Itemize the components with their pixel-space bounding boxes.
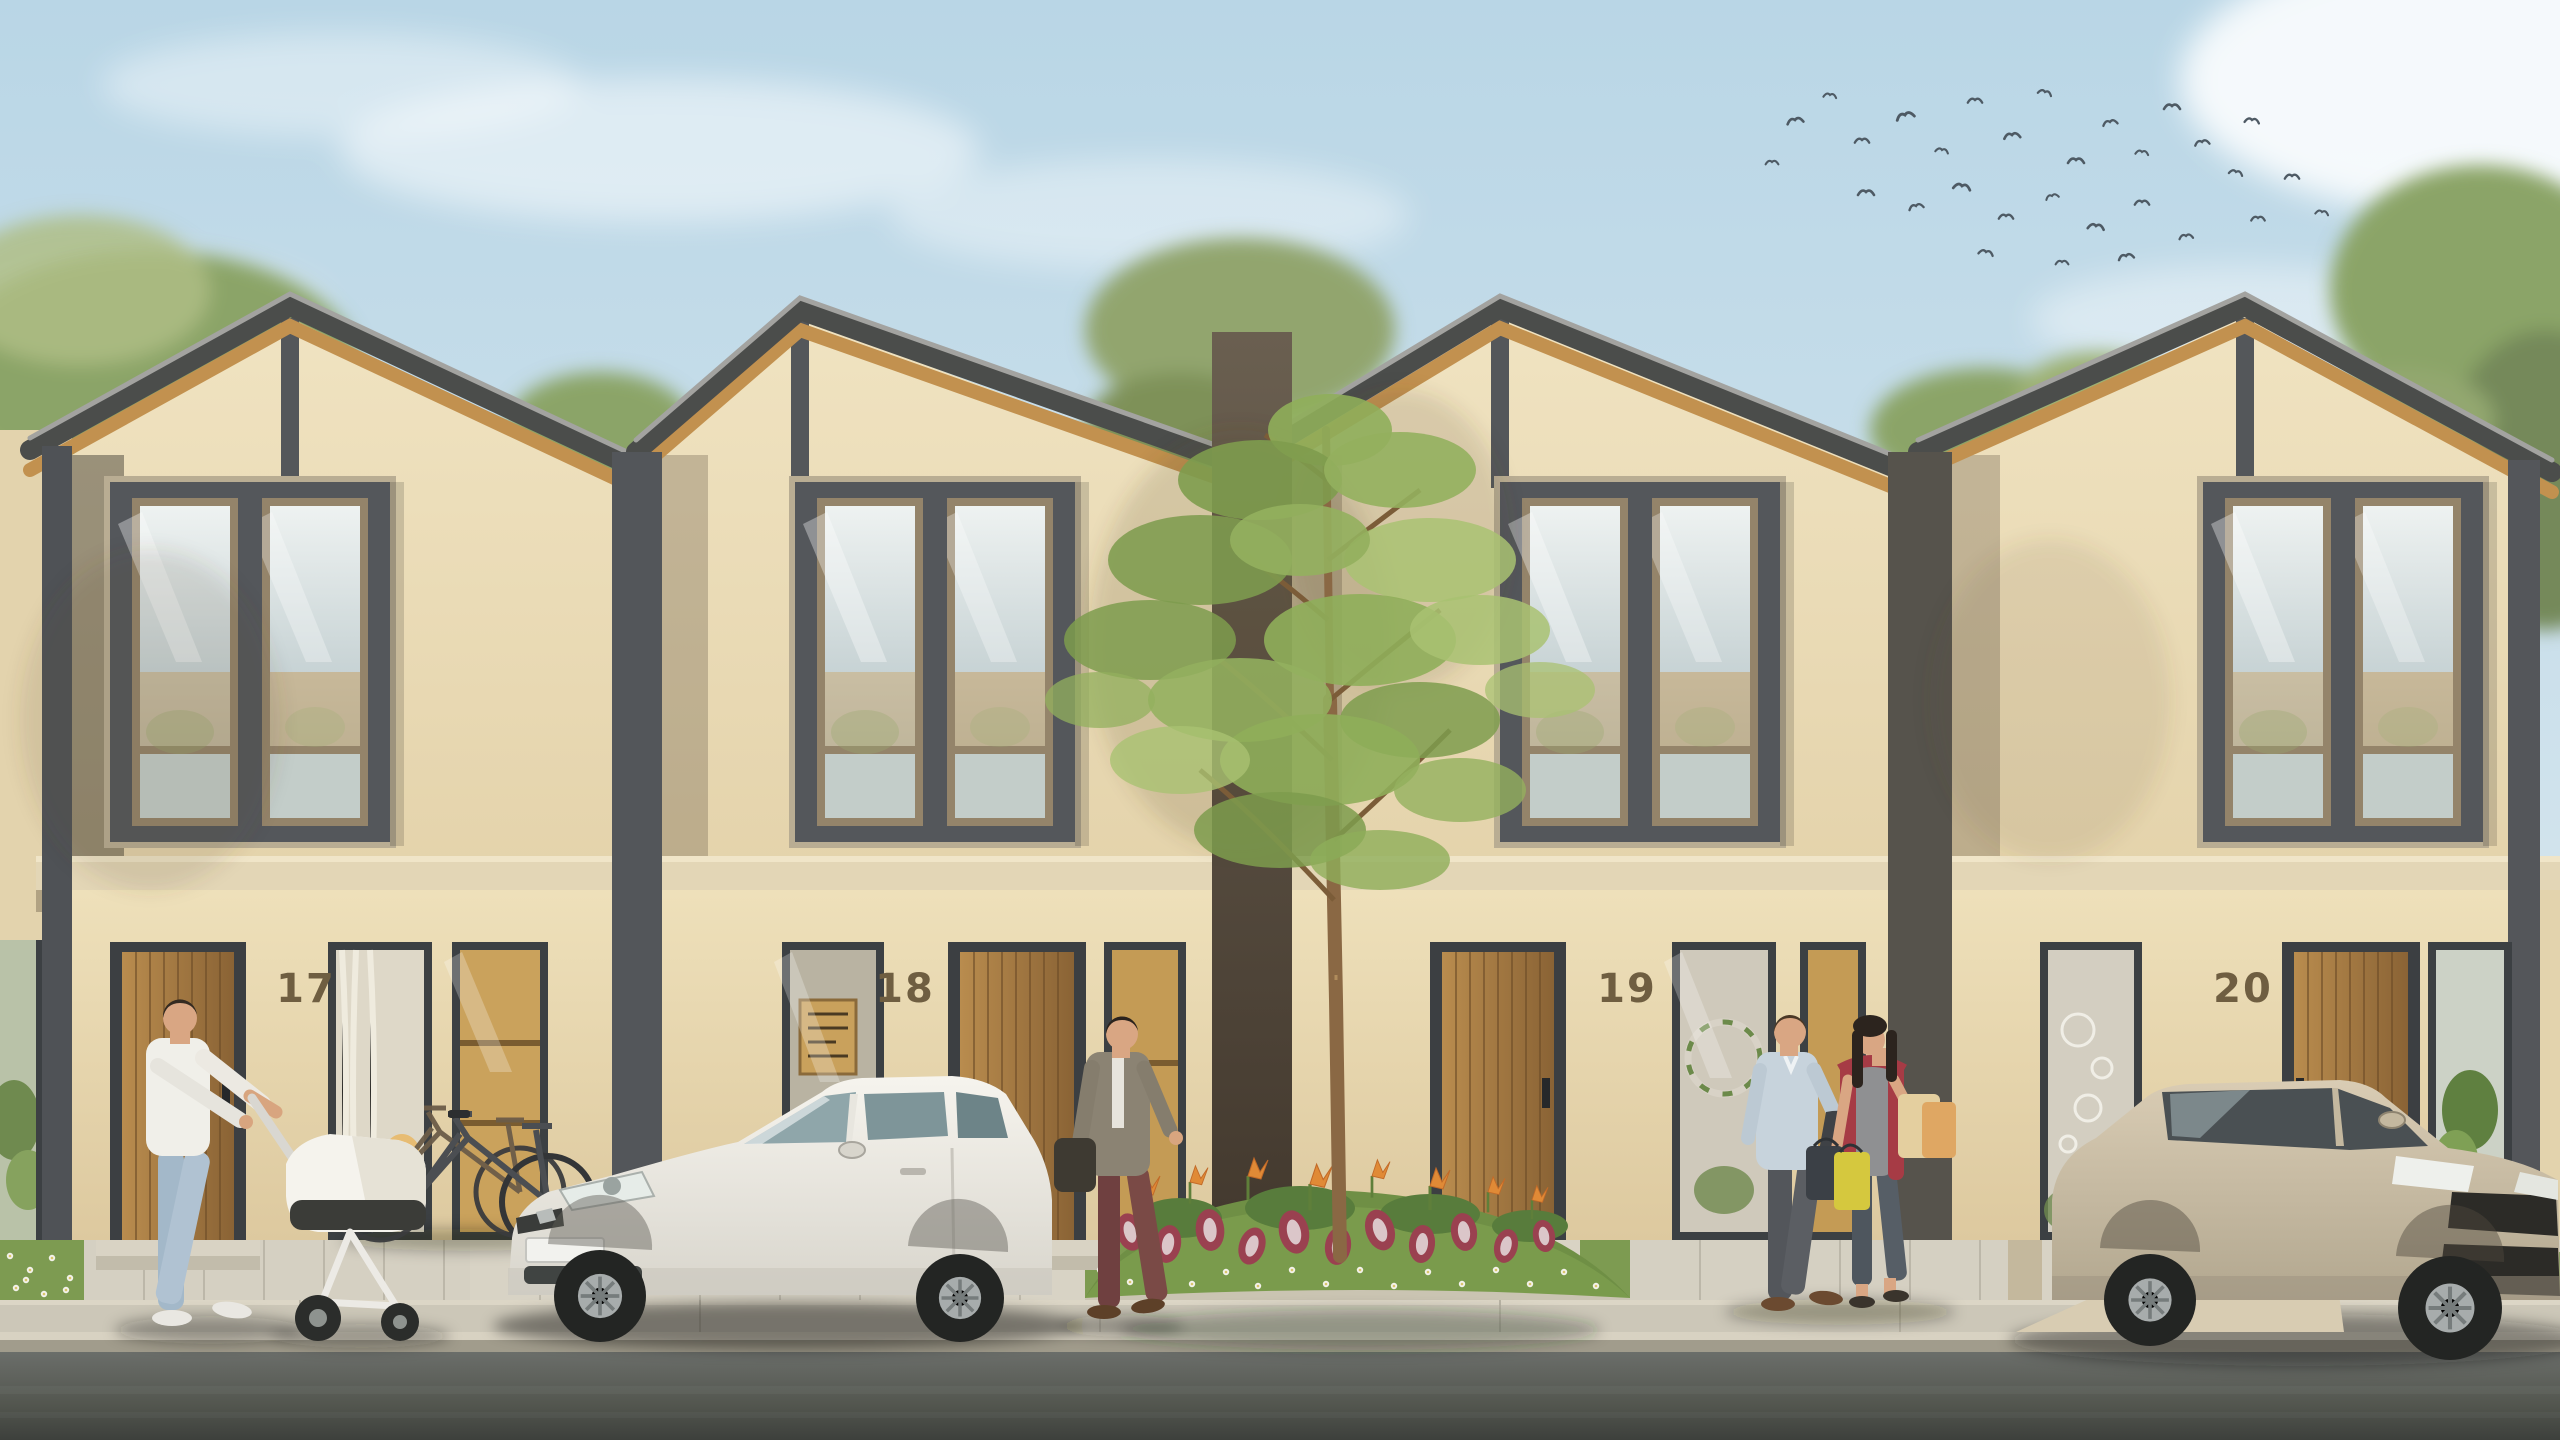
- house-number-20: 20: [2213, 966, 2273, 1012]
- window-bay-19: [1494, 476, 1794, 848]
- window-lit-17: [444, 942, 548, 1240]
- planter-step: [2008, 1240, 2042, 1300]
- window-bay-18: [789, 476, 1089, 848]
- house-number-17: 17: [276, 966, 336, 1012]
- street: [0, 1352, 2560, 1440]
- house-number-18: 18: [875, 966, 935, 1012]
- door-lock-19: [1542, 1078, 1550, 1108]
- architectural-render-scene: 17 18 19 20: [0, 0, 2560, 1440]
- house-number-19: 19: [1597, 966, 1657, 1012]
- window-bay-20: [2197, 476, 2497, 848]
